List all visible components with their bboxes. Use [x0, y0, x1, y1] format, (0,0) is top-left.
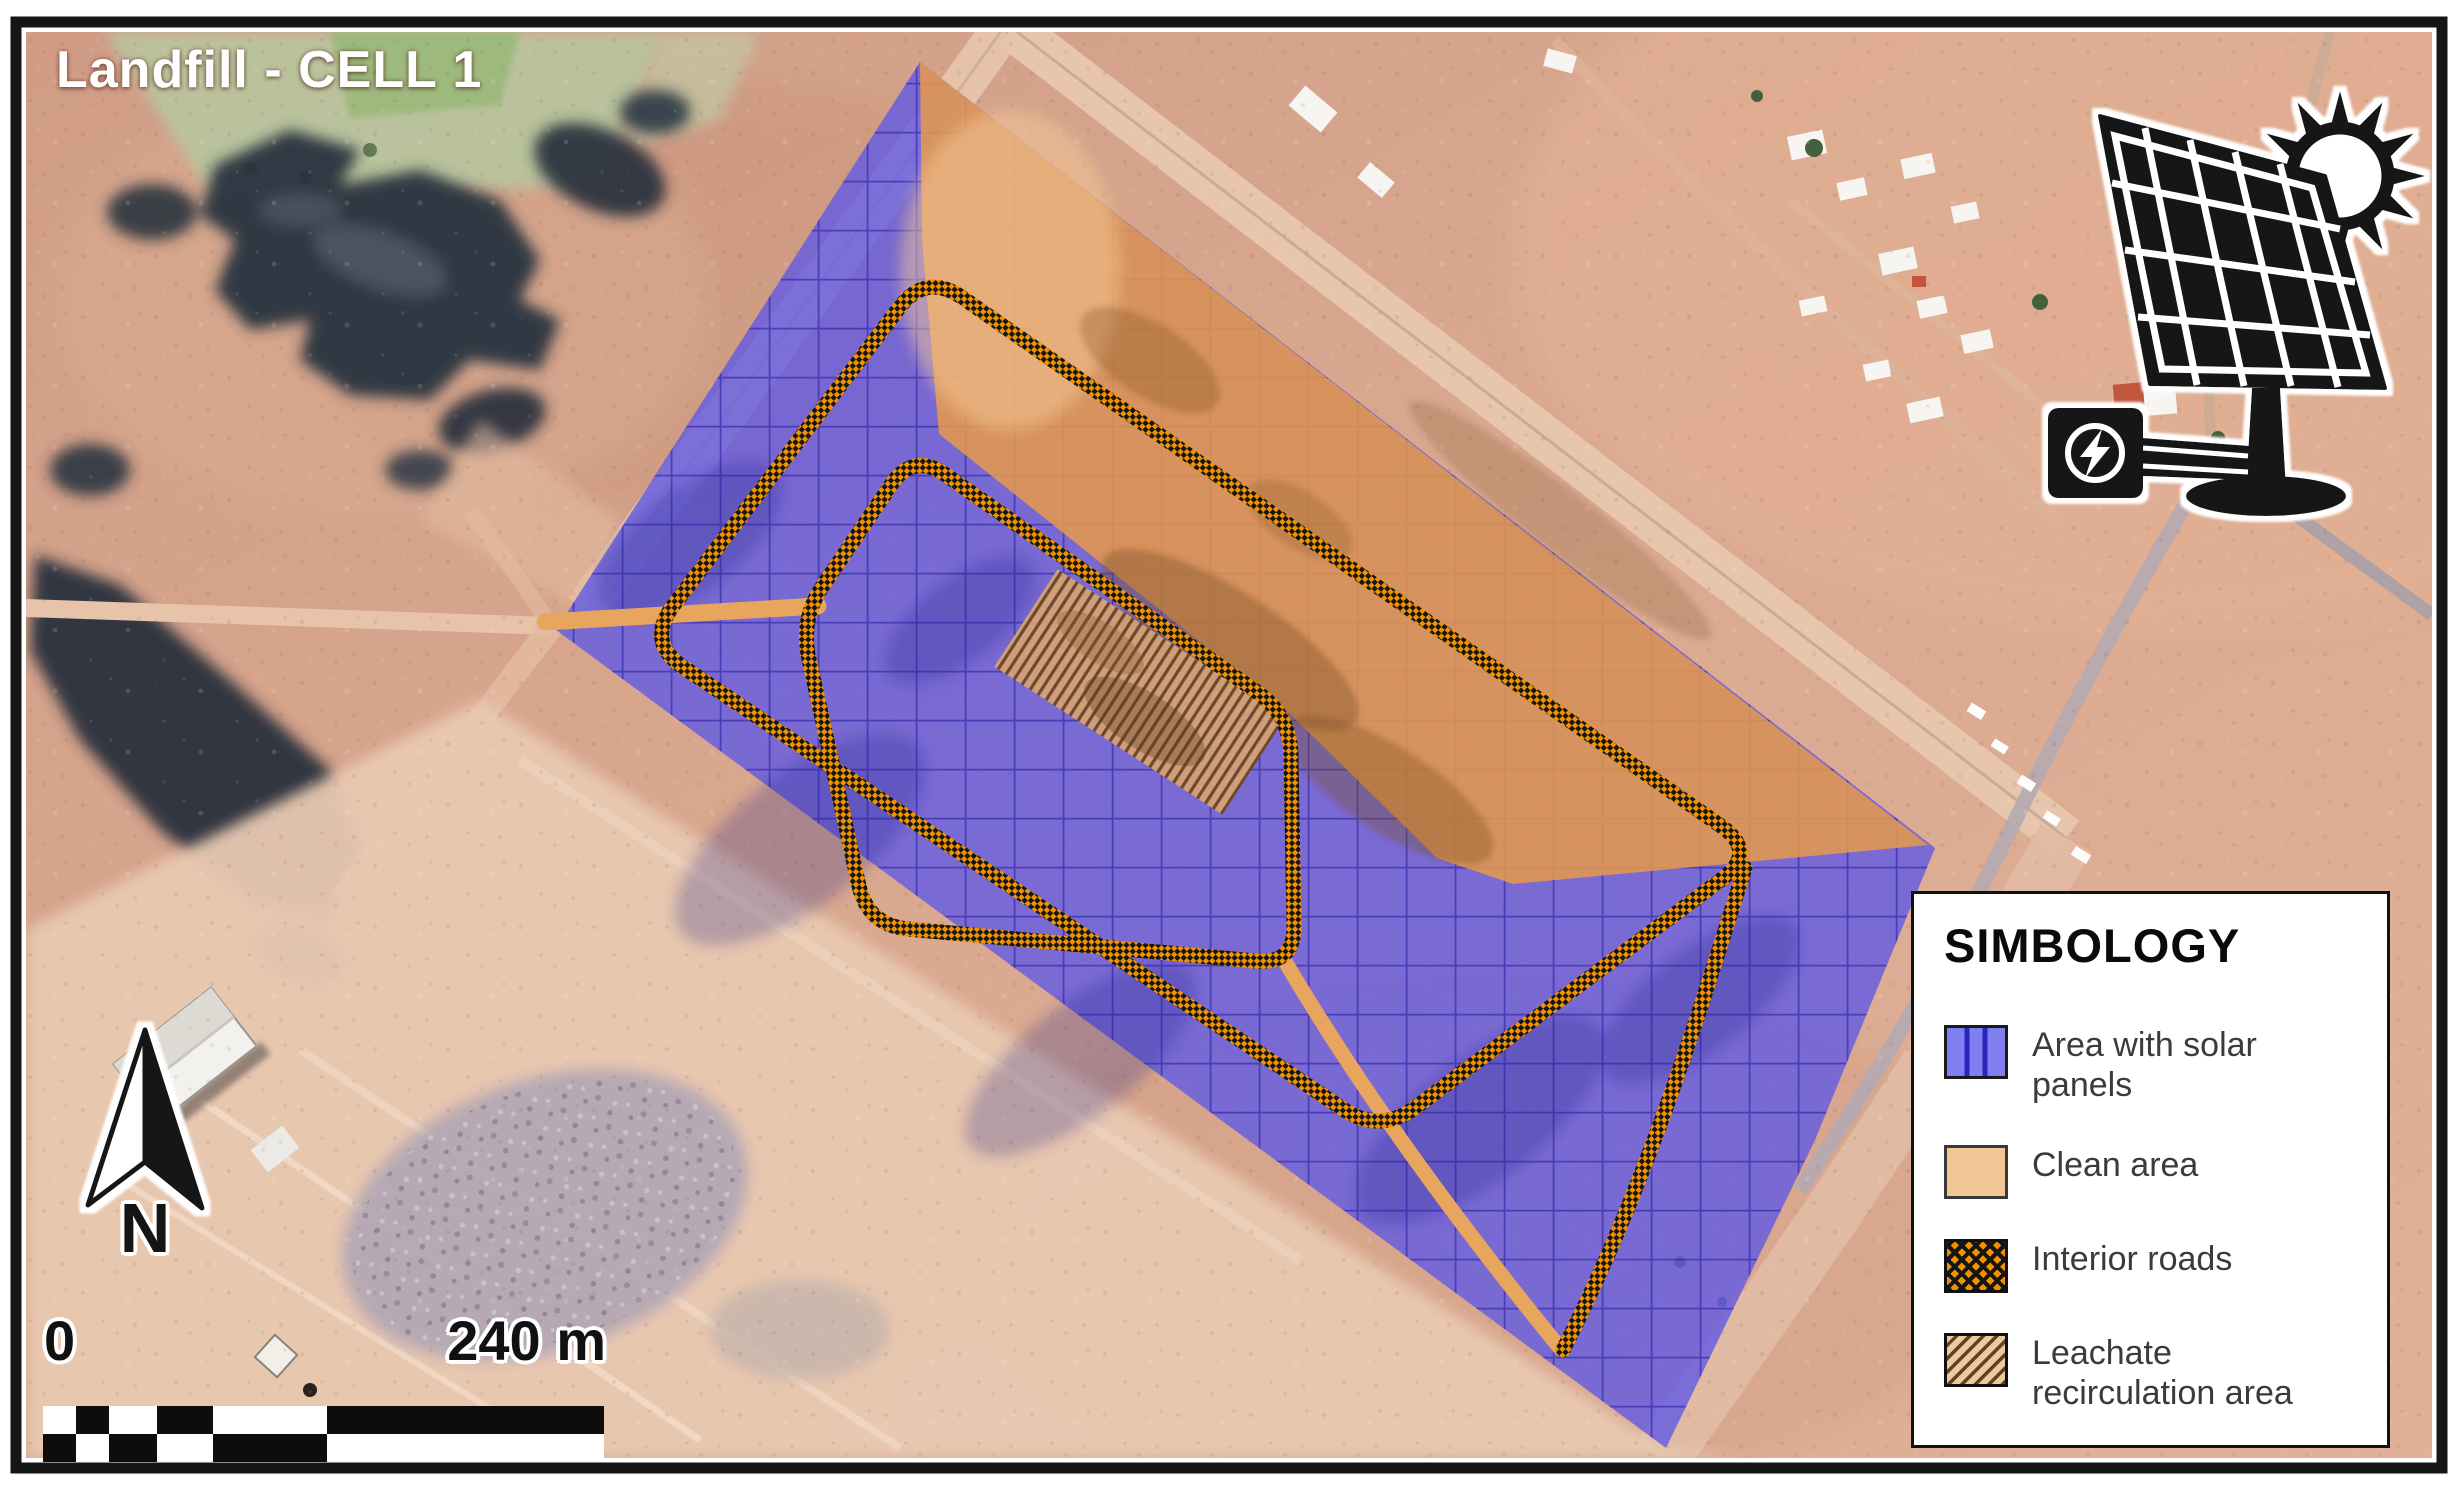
legend-item-solar: Area with solar panels — [1944, 1025, 2361, 1105]
scale-bar — [43, 1406, 604, 1462]
legend-item-label: Area with solar panels — [2032, 1025, 2342, 1105]
clean-area-swatch — [1944, 1145, 2008, 1199]
legend: SIMBOLOGY Area with solar panels Clean a… — [1911, 891, 2390, 1448]
legend-title: SIMBOLOGY — [1944, 918, 2361, 973]
scale-bar-top-row — [43, 1406, 604, 1434]
map-figure: Landfill - CELL 1 N 0 240 m SIMBOLOGY Ar… — [0, 0, 2458, 1490]
scale-start-label: 0 — [44, 1308, 75, 1373]
scale-end-label: 240 m — [420, 1308, 606, 1373]
north-label: N — [95, 1188, 195, 1268]
map-title: Landfill - CELL 1 — [56, 40, 482, 100]
interior-roads-swatch — [1944, 1239, 2008, 1293]
scale-bar-bottom-row — [43, 1434, 604, 1462]
legend-item-clean: Clean area — [1944, 1145, 2361, 1199]
legend-item-label: Leachate recirculation area — [2032, 1333, 2342, 1413]
legend-item-label: Clean area — [2032, 1145, 2198, 1185]
leachate-area-swatch — [1944, 1333, 2008, 1387]
solar-area-swatch — [1944, 1025, 2008, 1079]
legend-item-leachate: Leachate recirculation area — [1944, 1333, 2361, 1413]
legend-item-roads: Interior roads — [1944, 1239, 2361, 1293]
legend-item-label: Interior roads — [2032, 1239, 2232, 1279]
